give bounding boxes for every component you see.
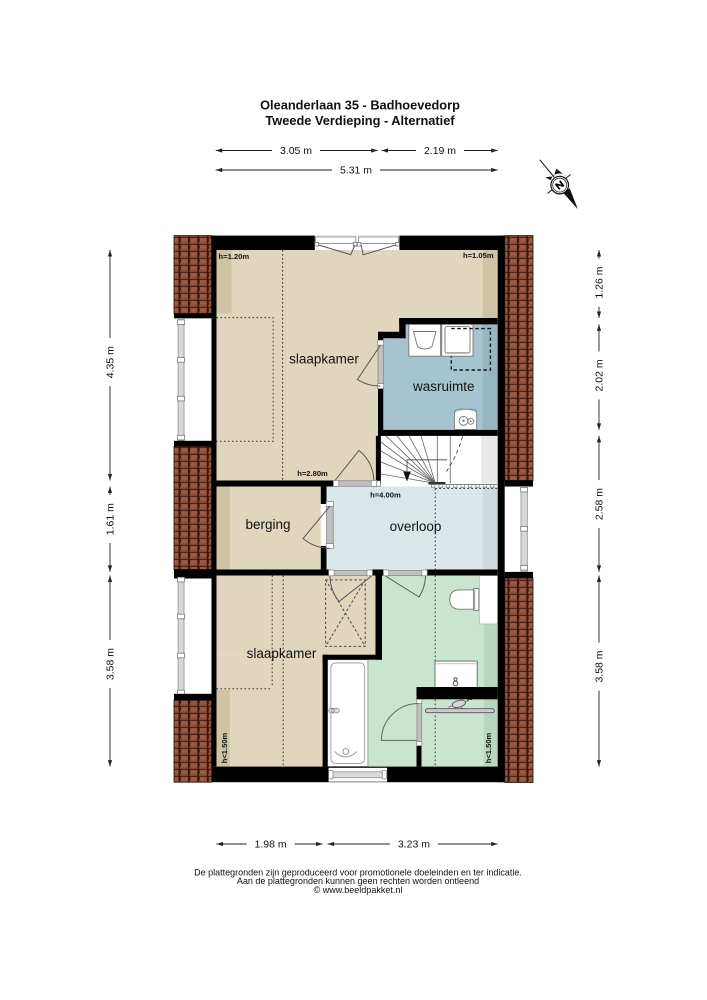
svg-text:slaapkamer: slaapkamer <box>247 646 317 661</box>
svg-text:overloop: overloop <box>390 519 442 534</box>
svg-text:3.05 m: 3.05 m <box>280 145 312 157</box>
svg-text:2.58 m: 2.58 m <box>594 488 606 520</box>
svg-text:Oleanderlaan 35 - Badhoevedorp: Oleanderlaan 35 - Badhoevedorp <box>260 97 460 112</box>
svg-text:h<1.50m: h<1.50m <box>484 732 493 763</box>
svg-text:h=1.20m: h=1.20m <box>219 252 250 261</box>
svg-text:berging: berging <box>245 517 290 532</box>
svg-text:5.31 m: 5.31 m <box>340 165 372 177</box>
svg-text:2.19 m: 2.19 m <box>424 145 456 157</box>
svg-text:wasruimte: wasruimte <box>412 379 475 394</box>
svg-text:Tweede Verdieping - Alternatie: Tweede Verdieping - Alternatief <box>265 113 455 128</box>
svg-text:© www.beeldpakket.nl: © www.beeldpakket.nl <box>314 885 403 895</box>
svg-text:h<1.50m: h<1.50m <box>220 732 229 763</box>
svg-text:3.58 m: 3.58 m <box>594 650 606 682</box>
svg-text:h=2.80m: h=2.80m <box>297 469 328 478</box>
svg-text:3.58 m: 3.58 m <box>105 648 117 680</box>
svg-text:1.98 m: 1.98 m <box>255 839 287 851</box>
svg-text:1.26 m: 1.26 m <box>594 266 606 298</box>
svg-text:1.61 m: 1.61 m <box>105 503 117 535</box>
svg-text:h=4.00m: h=4.00m <box>370 491 401 500</box>
svg-text:slaapkamer: slaapkamer <box>289 352 359 367</box>
svg-text:4.35 m: 4.35 m <box>105 346 117 378</box>
svg-text:3.23 m: 3.23 m <box>398 839 430 851</box>
svg-text:2.02 m: 2.02 m <box>594 359 606 391</box>
svg-text:h=1.05m: h=1.05m <box>463 251 494 260</box>
